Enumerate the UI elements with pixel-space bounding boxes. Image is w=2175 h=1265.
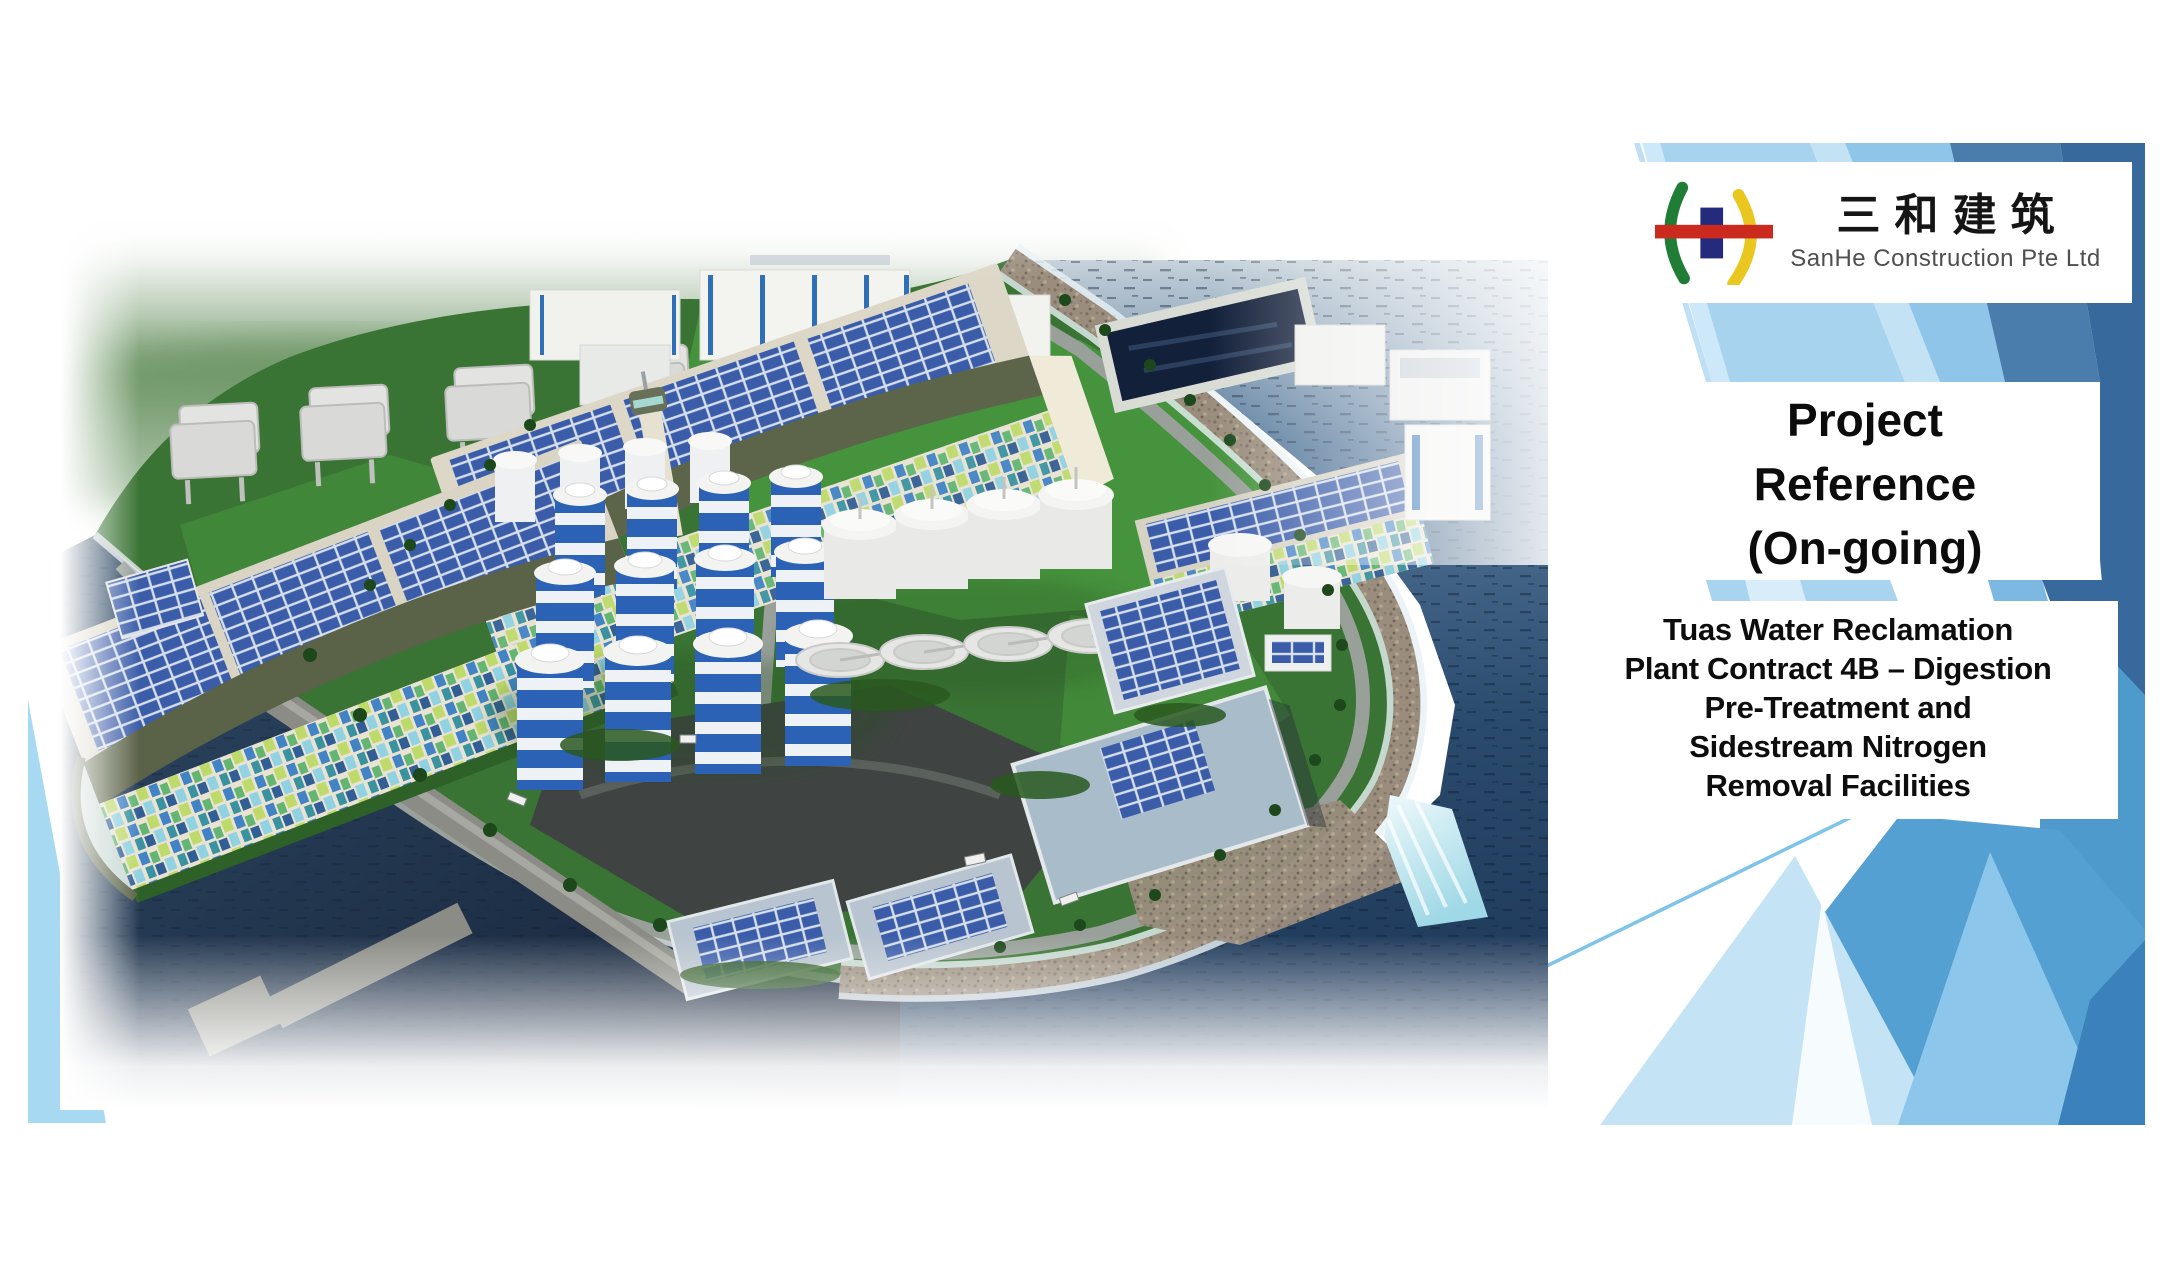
page-title: Project Reference (On-going): [1700, 382, 2030, 580]
plant-render-illustration: [60, 95, 1548, 1110]
project-description: Tuas Water Reclamation Plant Contract 4B…: [1558, 601, 2118, 819]
slide-canvas: 三和建筑 SanHe Construction Pte Ltd Project …: [0, 0, 2175, 1265]
sanhe-logo-icon: [1655, 181, 1773, 285]
logo-chinese-name: 三和建筑: [1823, 192, 2069, 240]
logo-company-name: SanHe Construction Pte Ltd: [1790, 245, 2101, 273]
logo-card: 三和建筑 SanHe Construction Pte Ltd: [1633, 162, 2132, 303]
